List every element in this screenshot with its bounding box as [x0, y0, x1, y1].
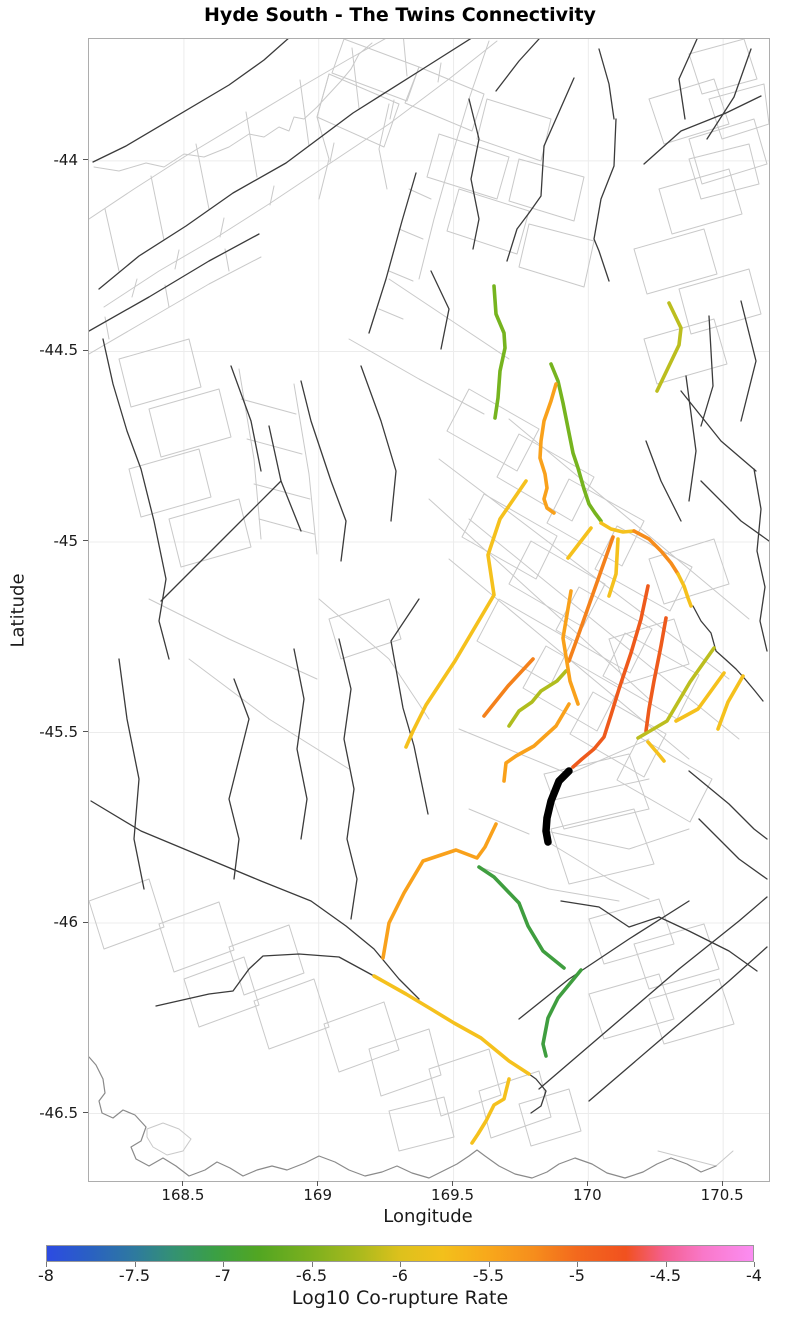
fault-trace	[644, 96, 761, 164]
map-canvas	[89, 39, 769, 1181]
fault-trace	[686, 376, 696, 501]
y-tick-label: -44.5	[0, 341, 78, 359]
y-tick-label: -45.5	[0, 723, 78, 741]
fault-trace	[339, 639, 357, 919]
fault-surface-outline	[169, 499, 251, 567]
background-fault-line	[259, 519, 314, 534]
background-fault-line	[349, 339, 484, 414]
background-fault-line	[165, 285, 169, 307]
background-fault-line	[459, 729, 569, 774]
y-tick-mark	[83, 540, 88, 541]
fault-trace	[561, 901, 757, 971]
background-fault-line	[389, 279, 509, 359]
background-fault-line	[246, 112, 257, 177]
fault-surface-outline	[324, 1002, 399, 1072]
plot-area	[88, 38, 770, 1182]
background-fault-line	[330, 143, 334, 162]
fault-surface-outline	[405, 67, 484, 131]
fault-surface-outline	[89, 879, 164, 949]
fault-trace	[679, 39, 697, 119]
y-tick-mark	[83, 350, 88, 351]
background-fault-line	[94, 43, 372, 171]
fault-trace	[119, 659, 144, 889]
fault-surface-outline	[479, 1071, 551, 1138]
co-rupture-fault	[648, 742, 664, 761]
background-fault-line	[149, 599, 317, 679]
fault-surface-outline	[429, 1049, 501, 1116]
co-rupture-fault	[718, 676, 743, 729]
fault-surface-outline	[149, 389, 231, 457]
fault-surface-outline	[595, 526, 692, 611]
fault-trace	[693, 606, 763, 701]
background-fault-line	[189, 659, 349, 769]
fault-surface-outline	[477, 99, 551, 161]
background-fault-line	[403, 39, 407, 76]
fault-trace	[689, 771, 767, 839]
fault-trace	[529, 1074, 546, 1113]
fault-trace	[301, 381, 346, 561]
background-fault-line	[254, 484, 310, 499]
y-tick-label: -46.5	[0, 1104, 78, 1122]
background-fault-line	[300, 80, 309, 146]
background-fault-line	[409, 189, 431, 199]
fault-surface-outline	[509, 541, 605, 627]
fault-surface-outline	[679, 269, 761, 334]
background-fault-line	[469, 809, 529, 834]
colorbar-tick-label: -4	[724, 1266, 784, 1285]
y-tick-label: -46	[0, 913, 78, 931]
background-fault-line	[509, 419, 749, 619]
co-rupture-fault	[551, 364, 601, 521]
fault-trace	[369, 173, 416, 333]
background-fault-line	[379, 309, 403, 319]
y-tick-mark	[83, 922, 88, 923]
x-tick-label: 169.5	[408, 1186, 498, 1204]
x-tick-mark	[587, 1181, 588, 1186]
page-title: Hyde South - The Twins Connectivity	[60, 4, 740, 26]
fault-surface-outline	[634, 229, 717, 294]
fault-trace	[594, 119, 616, 281]
coastline	[89, 1057, 716, 1178]
fault-trace	[294, 649, 307, 839]
fault-surface-outline	[509, 159, 584, 221]
fault-trace	[361, 366, 396, 521]
background-fault-line	[438, 63, 441, 82]
fault-surface-outline	[159, 902, 234, 972]
background-fault-line	[196, 144, 209, 209]
x-tick-label: 168.5	[138, 1186, 228, 1204]
co-rupture-fault	[543, 970, 581, 1056]
fault-trace	[89, 234, 259, 331]
background-fault-line	[294, 384, 317, 554]
fault-trace	[391, 599, 428, 814]
colorbar-tick-label: -5.5	[459, 1266, 519, 1285]
fault-trace	[91, 801, 419, 999]
fault-surface-outline	[609, 619, 689, 684]
fault-trace	[469, 99, 479, 249]
co-rupture-fault	[504, 704, 569, 781]
fault-surface-outline	[649, 979, 734, 1044]
co-rupture-fault	[479, 867, 564, 968]
background-fault-line	[399, 229, 423, 239]
fault-trace	[156, 954, 374, 1006]
fault-surface-outline	[649, 79, 729, 144]
fault-surface-outline	[389, 1097, 454, 1151]
fault-surface-outline	[254, 979, 329, 1049]
y-tick-mark	[83, 159, 88, 160]
fault-surface-outline	[129, 449, 211, 517]
background-fault-line	[569, 739, 649, 774]
background-fault-line	[105, 209, 119, 271]
fault-surface-outline	[519, 224, 594, 287]
co-rupture-fault	[568, 528, 591, 558]
y-tick-mark	[83, 731, 88, 732]
fault-trace	[161, 481, 281, 601]
co-rupture-fault	[374, 976, 529, 1074]
fault-trace	[754, 469, 767, 651]
fault-surface-outline	[689, 144, 759, 199]
co-rupture-fault	[494, 286, 505, 418]
co-rupture-fault	[509, 671, 566, 726]
fault-trace	[496, 39, 539, 91]
fault-surface-outline	[229, 925, 304, 995]
x-tick-mark	[182, 1181, 183, 1186]
fault-trace	[599, 49, 614, 119]
background-fault-line	[389, 271, 413, 281]
y-tick-label: -44	[0, 151, 78, 169]
colorbar-tick-label: -6	[370, 1266, 430, 1285]
fault-trace	[231, 366, 261, 471]
fault-surface-outline	[119, 339, 201, 407]
fault-trace	[646, 441, 681, 521]
background-fault-line	[546, 829, 689, 849]
background-fault-line	[241, 399, 296, 414]
fault-surface-outline	[447, 189, 529, 254]
background-fault-line	[89, 257, 261, 354]
fault-surface-outline	[369, 1029, 441, 1096]
colorbar-tick-label: -8	[16, 1266, 76, 1285]
co-rupture-fault	[540, 384, 556, 513]
fault-trace	[269, 426, 301, 531]
x-tick-label: 169	[273, 1186, 363, 1204]
co-rupture-fault	[601, 523, 634, 532]
fault-trace	[539, 897, 767, 1089]
colorbar-tick-label: -6.5	[282, 1266, 342, 1285]
y-tick-mark	[83, 1112, 88, 1113]
fault-trace	[681, 391, 756, 471]
x-axis-label: Longitude	[88, 1206, 768, 1227]
colorbar-gradient	[46, 1245, 754, 1262]
colorbar-label: Log10 Co-rupture Rate	[46, 1287, 754, 1309]
co-rupture-fault	[383, 824, 496, 958]
x-tick-label: 170	[542, 1186, 632, 1204]
fault-trace	[431, 271, 449, 349]
co-rupture-fault	[569, 537, 613, 661]
y-tick-label: -45	[0, 532, 78, 550]
background-fault-line	[151, 176, 164, 240]
fault-trace	[229, 679, 249, 879]
background-fault-line	[390, 100, 394, 119]
fault-surface-outline	[329, 599, 401, 659]
colorbar-tick-label: -7	[193, 1266, 253, 1285]
x-tick-mark	[452, 1181, 453, 1186]
colorbar-tick-label: -5	[547, 1266, 607, 1285]
figure: Hyde South - The Twins Connectivity -44-…	[0, 0, 800, 1327]
fault-surface-outline	[427, 134, 509, 199]
x-tick-label: 170.5	[677, 1186, 767, 1204]
source-fault	[546, 771, 569, 842]
fault-trace	[699, 819, 767, 879]
co-rupture-fault	[406, 481, 526, 747]
x-tick-mark	[722, 1181, 723, 1186]
x-tick-mark	[317, 1181, 318, 1186]
background-fault-line	[548, 842, 649, 899]
colorbar-tick-label: -7.5	[105, 1266, 165, 1285]
fault-surface-outline	[634, 924, 719, 989]
fault-surface-outline	[547, 479, 644, 566]
colorbar-tick-label: -4.5	[636, 1266, 696, 1285]
y-axis-label: Latitude	[8, 551, 29, 671]
